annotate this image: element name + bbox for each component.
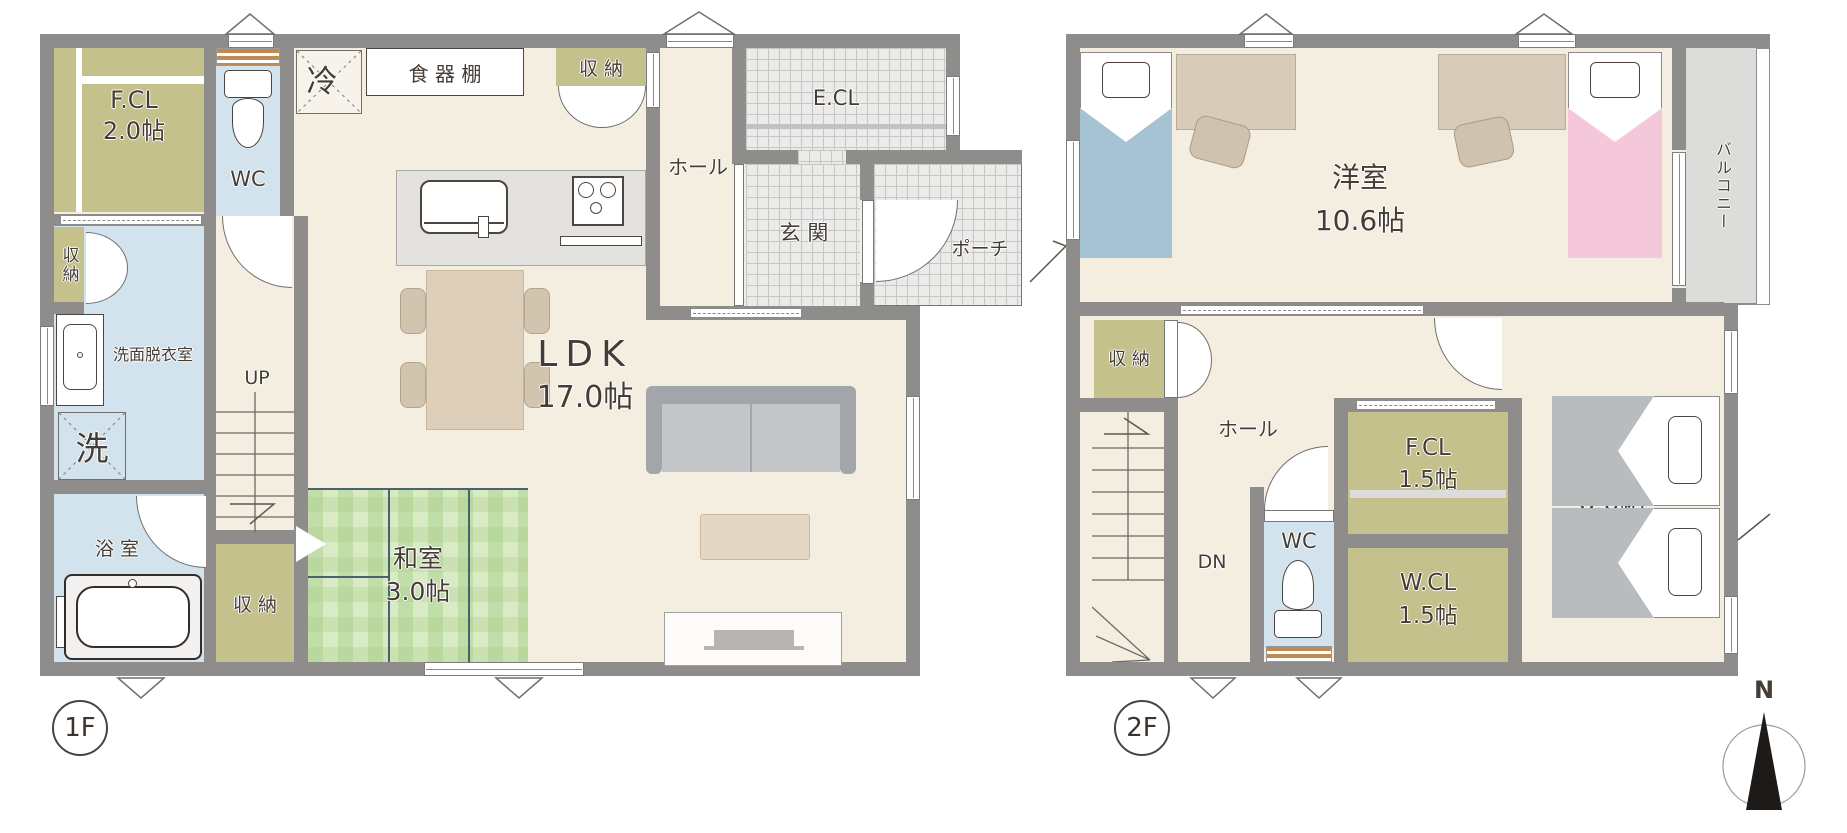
wall [54,302,84,314]
burner-icon [600,182,616,198]
label-storage-2f: 収 納 [1092,344,1166,372]
vent-mark-icon [1238,12,1294,36]
drain-icon [128,579,137,588]
tatami-line [468,490,470,662]
wall [204,48,216,214]
wall [1508,398,1522,662]
wall [1066,662,1738,676]
blanket-fold-icon [1080,108,1172,142]
wall [1164,407,1178,662]
window [646,52,660,108]
door-leaf [1164,320,1178,398]
room-label-wc-1f: WC [220,166,276,192]
room-label-fcl-2f: F.CL [1383,434,1473,462]
wall [294,216,308,662]
sliding-door [690,308,802,318]
chair [400,362,426,408]
floor-badge-1f: 1F [52,700,108,756]
burner-icon [578,182,594,198]
wall [1672,48,1686,150]
label-stairs-down: DN [1188,550,1236,574]
pillow-icon [1590,62,1640,98]
kitchen-sink-icon [420,180,508,234]
tv-base-icon [704,646,804,650]
genkan-step [734,164,744,306]
toilet-bowl-icon [1282,560,1314,610]
pillow-icon [1102,62,1150,98]
window [228,34,274,48]
room-label-senmen: 洗面脱衣室 [100,342,206,364]
bathtub-inner [76,586,190,648]
window [424,662,584,676]
vent-mark-icon [494,676,544,700]
desk [1176,54,1296,130]
burner-icon [590,202,602,214]
window [1244,34,1294,48]
room-size-fcl-1f: 2.0帖 [74,114,194,142]
vent-mark-icon [116,676,166,700]
room-size-fcl-2f: 1.5帖 [1383,464,1473,490]
sliding-door [1356,400,1496,410]
room-size-ldk: 17.0帖 [505,376,665,412]
toilet-icon [1274,610,1322,638]
compass-icon [1722,704,1810,822]
sliding-door [1180,305,1424,315]
label-storage-top-1f: 収 納 [556,52,646,82]
label-storage-left-1f: 収納 [54,233,84,297]
chair [400,288,426,334]
low-table [700,514,810,560]
window [666,34,734,48]
wall [1066,34,1770,48]
wall [280,48,294,216]
window [1724,330,1738,394]
window [946,76,960,136]
room-label-washitsu: 和室 [370,542,466,572]
door-leaf [862,200,874,284]
room-label-balcony: バルコニー [1702,116,1742,256]
room-size-yoshitsu: 10.6帖 [1285,202,1435,236]
toilet-icon [224,70,272,98]
wall [40,34,960,48]
vent-mark-icon [1189,676,1237,700]
label-washer: 洗 [70,424,114,468]
wall [1334,534,1522,548]
floor-badge-2f: 2F [1114,700,1170,756]
room-size-wcl-2f: 1.5帖 [1383,600,1473,626]
balcony-railing [1756,48,1770,305]
wall [846,150,1022,164]
room-size-washitsu: 3.0帖 [370,576,466,604]
room-label-bath: 浴 室 [86,534,148,560]
toilet-bowl-icon [232,98,264,148]
sink-divider [424,222,504,224]
room-label-hall-1f: ホール [662,152,734,178]
tv-icon [714,630,794,646]
room-label-wcl-2f: W.CL [1378,568,1478,598]
faucet-dot-icon [77,352,83,358]
wall [1250,487,1264,662]
room-label-wc-2f: WC [1270,528,1328,554]
sofa-seat-divider [750,404,752,472]
wall [54,480,204,494]
wall [860,282,874,306]
room-label-porch: ポーチ [942,234,1018,260]
door-sill [1264,510,1334,522]
window [1066,140,1080,240]
chair [524,288,550,334]
wall [1066,34,1080,676]
label-cupboard: 食 器 棚 [366,56,524,88]
pillow-icon [1668,528,1702,596]
shelf-icon [216,48,280,66]
sofa-arm [646,386,662,474]
pillow-icon [1668,416,1702,484]
shelf-icon [1266,646,1332,662]
floor-plan: F.CL 2.0帖 WC 冷 食 器 棚 収 納 LDK 17.0帖 ホール [0,0,1847,833]
label-refrigerator: 冷 [300,58,344,98]
grill-icon [560,236,642,246]
sofa-arm [840,386,856,474]
label-storage-bottom-1f: 収 納 [216,588,294,618]
compass-north-label: N [1744,676,1784,704]
blanket-fold-icon [1568,108,1662,142]
ecl-shelf-line [746,124,946,129]
window [1724,596,1738,654]
vent-mark-icon [1514,12,1574,36]
vent-mark-icon [224,12,276,36]
blanket-fold-icon [1618,508,1654,618]
stairs-up [216,392,294,532]
wall [204,214,216,662]
room-label-ecl: E.CL [798,84,874,112]
wall [732,48,746,164]
room-label-genkan: 玄 関 [766,218,842,246]
vent-mark-icon [1295,676,1343,700]
blanket-fold-icon [1618,396,1654,506]
stairs-down [1092,412,1164,662]
window [1518,34,1576,48]
sofa-back [648,386,856,404]
room-label-hall-2f: ホール [1210,414,1286,440]
label-stairs-up: UP [236,366,278,390]
shelf-line [82,76,204,84]
wall [216,530,294,544]
window [40,326,54,406]
vent-mark-icon [662,10,736,36]
tick-mark-icon [1736,512,1774,542]
faucet-icon [478,216,489,238]
wall [1334,398,1348,662]
f1-ecl-pass [798,150,846,164]
wall [860,164,874,200]
room-label-ldk: LDK [520,334,650,374]
sliding-door [60,215,202,225]
wall [732,150,798,164]
tatami-edge [308,488,528,490]
window [1672,152,1686,286]
window [906,396,920,500]
room-label-yoshitsu: 洋室 [1300,158,1420,194]
folding-door-icon [296,526,326,562]
